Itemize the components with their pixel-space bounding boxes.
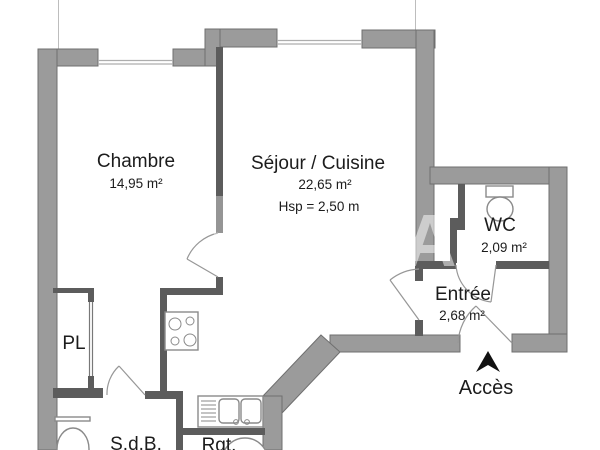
wall-bottom-right-block — [512, 334, 567, 352]
partition-kitchen-top — [160, 288, 223, 295]
access-arrow-icon — [476, 351, 500, 372]
room-ceiling-height-sejour: Hsp = 2,50 m — [279, 199, 360, 214]
partition-wc-door-jamb — [496, 261, 549, 269]
watermark-letter: A — [403, 199, 456, 282]
floor-plan-canvas: A Chambre 14,95 m² Séjour / Cuisine 22,6… — [0, 0, 600, 450]
floor-plan: A Chambre 14,95 m² Séjour / Cuisine 22,6… — [0, 0, 600, 450]
wall-below-diagonal — [263, 396, 282, 450]
wall-wc-top — [430, 167, 567, 184]
door-sdb — [107, 366, 145, 395]
room-area-wc: 2,09 m² — [481, 240, 527, 255]
room-area-chambre: 14,95 m² — [109, 176, 163, 191]
window-chambre — [98, 61, 173, 65]
room-label-wc: WC — [484, 215, 516, 236]
room-area-entree: 2,68 m² — [439, 308, 485, 323]
partition-pl-bottom — [53, 388, 103, 398]
room-label-entree: Entrée — [435, 284, 491, 305]
room-label-rgt: Rgt. — [202, 435, 237, 450]
washbasin-icon — [55, 417, 90, 450]
partition-pl-top — [53, 288, 94, 293]
window-sejour — [277, 41, 362, 45]
partition-pl-jamb-bottom — [88, 376, 94, 390]
room-label-sdb: S.d.B. — [110, 434, 162, 450]
door-chambre — [187, 233, 218, 277]
partition-sejour-door-stub-bottom — [415, 320, 423, 336]
partition-sdb-rgt — [176, 391, 183, 450]
room-area-sejour: 22,65 m² — [298, 177, 352, 192]
watermark-stripe — [214, 196, 225, 238]
partition-rgt-top — [183, 428, 265, 435]
wall-right — [549, 167, 567, 352]
stove-icon — [165, 312, 198, 350]
room-label-sejour: Séjour / Cuisine — [251, 153, 385, 174]
access-label: Accès — [459, 377, 513, 399]
room-label-chambre: Chambre — [97, 151, 175, 172]
room-label-pl: PL — [62, 333, 85, 354]
partition-pl-jamb-top — [88, 288, 94, 302]
wall-bottom-center — [330, 335, 460, 352]
sliding-door-pl — [90, 302, 93, 376]
kitchen-sink-icon — [198, 396, 263, 427]
